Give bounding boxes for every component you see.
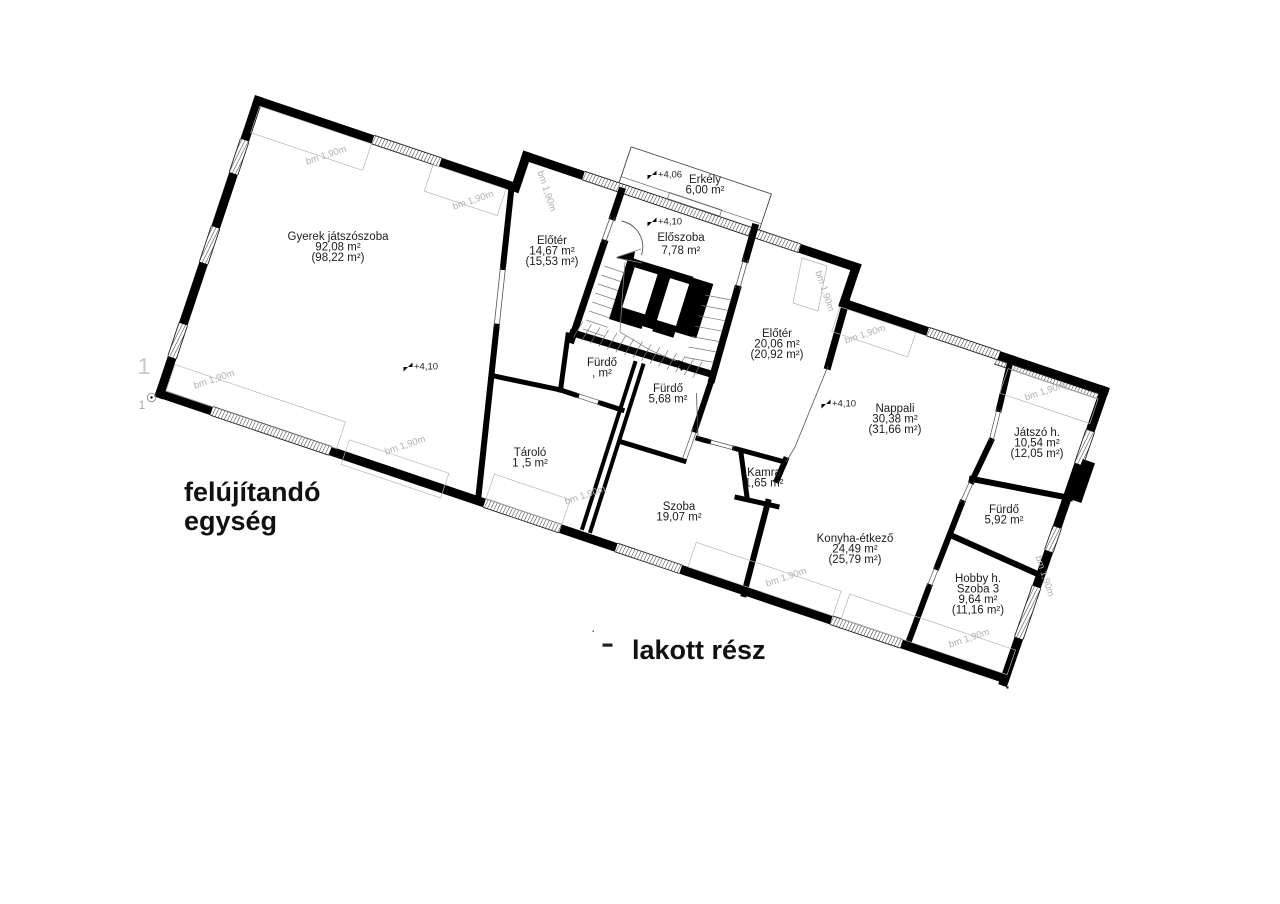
svg-text:egység: egység [184,506,277,536]
svg-text:(15,53 m²): (15,53 m²) [525,256,578,268]
svg-text:, m²: , m² [592,368,612,380]
svg-text:1: 1 [138,353,151,379]
svg-text:5,92 m²: 5,92 m² [985,515,1024,527]
svg-text:1,65 m²: 1,65 m² [745,478,784,490]
svg-text:(98,22 m²): (98,22 m²) [311,252,364,264]
svg-text:(12,05 m²): (12,05 m²) [1010,448,1063,460]
svg-text:19,07 m²: 19,07 m² [656,512,702,524]
svg-text:6,00 m²: 6,00 m² [686,185,725,197]
svg-text:+4,10: +4,10 [658,217,682,228]
svg-text:5,68 m²: 5,68 m² [649,394,688,406]
svg-text:Előszoba: Előszoba [657,232,705,244]
svg-text:(20,92 m²): (20,92 m²) [750,349,803,361]
svg-text:1 ,5 m²: 1 ,5 m² [512,458,548,470]
svg-text:(11,16 m²): (11,16 m²) [952,605,1004,617]
svg-text:7,78 m²: 7,78 m² [662,245,701,257]
svg-text:lakott rész: lakott rész [632,635,766,665]
svg-text:+4,10: +4,10 [414,362,438,373]
svg-text:(31,66 m²): (31,66 m²) [868,424,921,436]
svg-text:1: 1 [139,398,146,412]
svg-text:+4,06: +4,06 [658,170,682,181]
svg-text:felújítandó: felújítandó [184,477,321,507]
svg-text:+4,10: +4,10 [832,399,856,410]
svg-text:(25,79 m²): (25,79 m²) [828,554,881,566]
